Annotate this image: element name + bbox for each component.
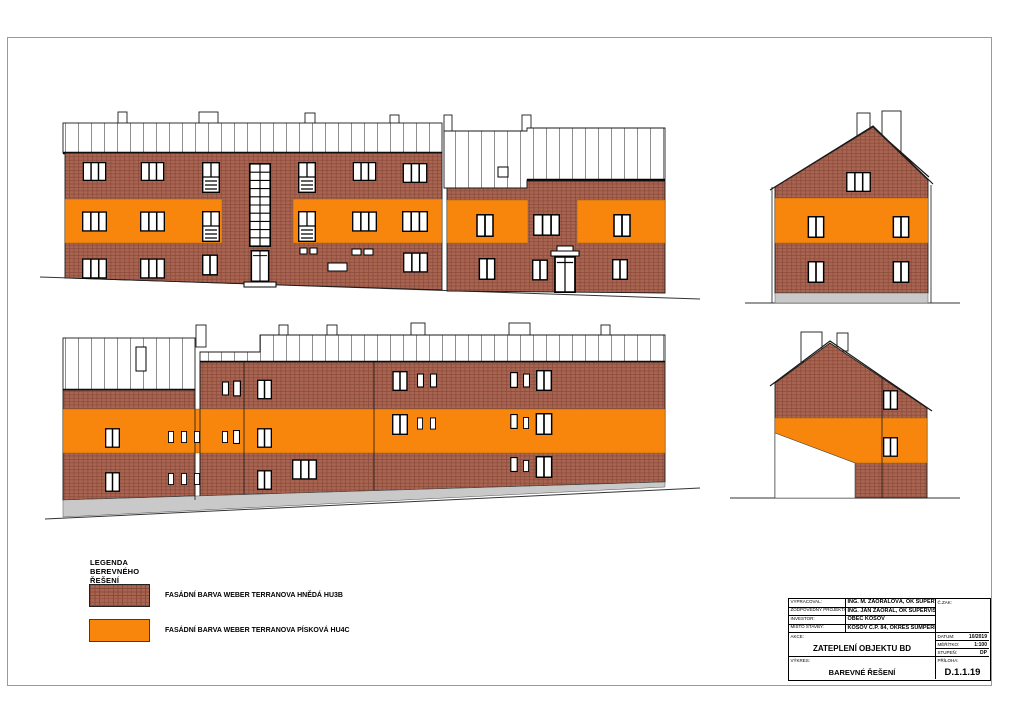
title-block-label-cell: VYPRACOVAL: — [789, 599, 846, 608]
side-elevation-gable-top — [745, 111, 960, 303]
drawing-name-cell: VÝKRES: BAREVNÉ ŘEŠENÍ — [789, 657, 936, 679]
entrance-door — [251, 251, 268, 281]
roof-band-left-wing — [63, 338, 195, 390]
title-block-label-cell: INVESTOR: — [789, 616, 846, 625]
title-block-label-cell: ZODPOVĚDNÝ PROJEKTANT: — [789, 608, 846, 617]
title-block-value-cell: KOSOV Č.P. 84, OKRES ŠUMPERK — [846, 625, 936, 634]
roof-band-main — [200, 335, 665, 362]
roof-vent — [498, 167, 508, 177]
orange-band — [63, 409, 665, 453]
door-pediment — [551, 251, 579, 256]
side-elevation-gable-bottom — [730, 332, 960, 498]
action-cell: AKCE: ZATEPLENÍ OBJEKTU BD — [789, 633, 936, 657]
drawing-number: D.1.1.19 — [936, 667, 989, 678]
scale-cell: MĚŘÍTKO: 1:100 — [936, 641, 989, 649]
legend-title: LEGENDA BEREVNÉHO ŘEŠENÍ — [90, 558, 139, 585]
front-elevation — [40, 112, 700, 299]
title-block-label-cell: MÍSTO STAVBY: — [789, 625, 846, 634]
attachment-cell: PŘÍLOHA: D.1.1.19 — [936, 657, 989, 679]
title-block: VYPRACOVAL: ING. M. ZAORALOVÁ, OK SUPERV… — [788, 598, 991, 681]
legend-label-orange: FASÁDNÍ BARVA WEBER TERRANOVA PÍSKOVÁ HU… — [165, 627, 350, 634]
side-entrance-door — [555, 257, 575, 292]
project-title: ZATEPLENÍ OBJEKTU BD — [789, 644, 935, 653]
title-block-value-cell: ING. JAN ZAORAL, OK SUPERVISION s.r.o. — [846, 608, 936, 617]
entrance-step — [244, 282, 276, 287]
plinth — [775, 293, 928, 303]
roof-band-main — [63, 123, 442, 153]
order-number-cell: Č.ZAK: — [936, 599, 989, 633]
drawing-title: BAREVNÉ ŘEŠENÍ — [789, 668, 935, 677]
legend-label-brick: FASÁDNÍ BARVA WEBER TERRANOVA HNĚDÁ HU3B — [165, 592, 343, 599]
stage-cell: STUPEŇ: DP — [936, 649, 989, 657]
title-block-value-cell: ING. M. ZAORALOVÁ, OK SUPERVISION s.r.o. — [846, 599, 936, 608]
roof-window — [136, 347, 146, 371]
drawing-sheet: { "colors": { "orange": "#F8860D", "bric… — [0, 0, 1024, 724]
title-block-value-cell: OBEC KOSOV — [846, 616, 936, 625]
rear-elevation — [45, 323, 700, 519]
legend-swatch-brick — [89, 584, 150, 607]
date-cell: DATUM: 10/2019 — [936, 633, 989, 641]
legend-swatch-orange — [89, 619, 150, 642]
